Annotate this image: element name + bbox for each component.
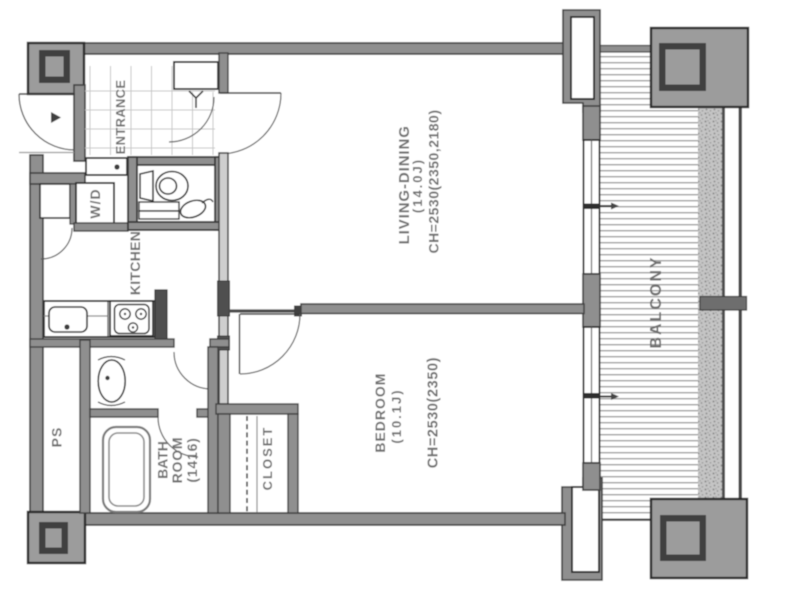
svg-text:W/D: W/D (87, 188, 103, 218)
svg-text:(10.1J): (10.1J) (389, 388, 404, 443)
svg-text:BALCONY: BALCONY (648, 255, 665, 348)
svg-text:PS: PS (48, 427, 64, 448)
svg-text:CH=2530(2350): CH=2530(2350) (425, 357, 441, 468)
svg-text:ROOM: ROOM (169, 437, 185, 484)
svg-text:(1416): (1416) (184, 437, 200, 482)
svg-text:(14.0J): (14.0J) (410, 158, 425, 213)
svg-text:KITCHEN: KITCHEN (127, 231, 143, 295)
svg-text:ENTRANCE: ENTRANCE (113, 80, 128, 155)
svg-text:BEDROOM: BEDROOM (372, 373, 388, 453)
svg-text:CH=2530(2350,2180): CH=2530(2350,2180) (426, 109, 442, 253)
svg-text:CLOSET: CLOSET (260, 426, 275, 491)
